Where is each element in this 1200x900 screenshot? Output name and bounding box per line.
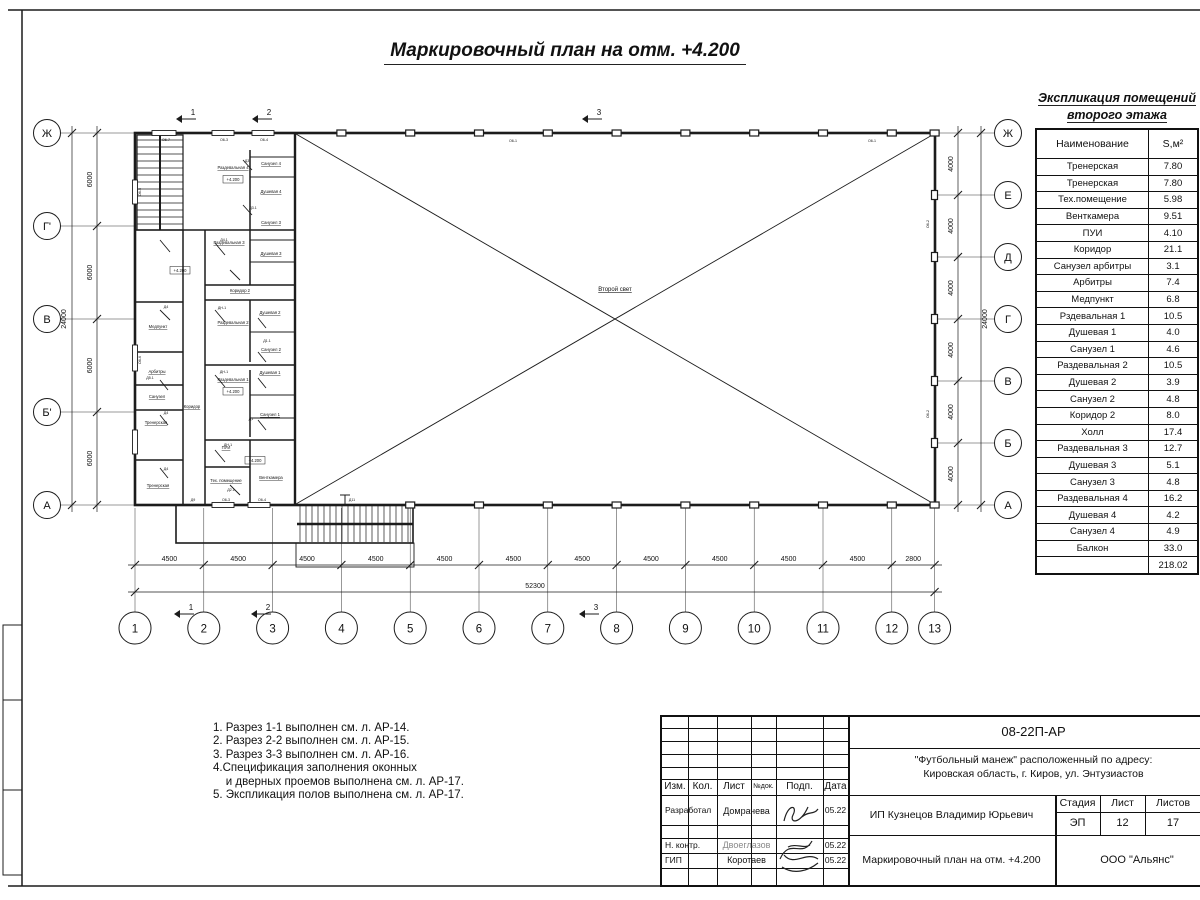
axis-bubble-right: Б <box>1004 438 1011 450</box>
table-row: Холл17.4 <box>1037 424 1197 441</box>
table-row: Тех.помещение5.98 <box>1037 191 1197 208</box>
plan-generated-annotations: ЖГ'ВБ'А600060006000600024000ЖЕДГВБА40004… <box>34 108 1022 644</box>
explication-panel: Экспликация помещений второго этажа Наим… <box>1035 90 1199 575</box>
wall-tag: ДН-1 <box>224 443 232 447</box>
note-line: 5. Экспликация полов выполнена см. л. АР… <box>213 789 464 802</box>
table-row: Тренерская7.80 <box>1037 158 1197 175</box>
axis-bubble-left: А <box>43 500 51 512</box>
plan-walls <box>135 133 935 505</box>
room-name: Тренерская <box>1037 176 1149 192</box>
dim-label: 4000 <box>948 280 955 296</box>
room-area: 8.0 <box>1149 408 1197 424</box>
col-podp: Подп. <box>776 779 823 795</box>
table-row: Раздевальная 312.7 <box>1037 440 1197 457</box>
wall-tag: Д3.1 <box>249 206 256 210</box>
room-name: Рздевальная 1 <box>1037 308 1149 324</box>
section-marker-label: 3 <box>594 603 599 612</box>
table-header: Наименование S,м² <box>1037 130 1197 158</box>
wall-tag: Д1.1 <box>263 339 270 343</box>
axis-bubble-bottom: 13 <box>928 624 941 636</box>
dim-total: 52300 <box>525 583 545 590</box>
wall-tag: О6-1 <box>868 139 876 143</box>
room-area: 4.8 <box>1149 391 1197 407</box>
title-block: Изм. Кол. Лист №док. Подп. Дата Разработ… <box>660 715 1200 887</box>
wall-tag: О6-2 <box>926 220 930 228</box>
section-marker-label: 3 <box>597 108 602 117</box>
room-label: Санузел 3 <box>261 220 281 225</box>
room-label: Раздевальная 4 <box>217 165 249 170</box>
room-label: Душевая 3 <box>261 251 283 256</box>
axis-bubble-bottom: 5 <box>407 624 413 636</box>
axis-bubble-right: Ж <box>1003 128 1013 140</box>
section-marker-label: 2 <box>267 108 272 117</box>
table-row: Душевая 23.9 <box>1037 374 1197 391</box>
total-name <box>1037 557 1149 573</box>
table-row: Санузел арбитры3.1 <box>1037 258 1197 275</box>
developed-date: 05.22 <box>823 797 848 825</box>
note-line: 1. Разрез 1-1 выполнен см. л. АР-14. <box>213 722 464 735</box>
col-data: Дата <box>823 779 848 795</box>
client-name: ИП Кузнецов Владимир Юрьевич <box>848 795 1055 835</box>
room-area: 10.5 <box>1149 308 1197 324</box>
room-area: 6.8 <box>1149 292 1197 308</box>
axis-bubble-left: Ж <box>42 128 52 140</box>
gip-date: 05.22 <box>823 853 848 868</box>
table-row: Коридор21.1 <box>1037 241 1197 258</box>
axis-bubble-right: В <box>1004 376 1011 388</box>
total-area: 218.02 <box>1149 557 1197 573</box>
wall-tag: Д1 <box>249 417 253 421</box>
room-label: Венткамера <box>259 475 283 480</box>
dim-label: 6000 <box>87 451 94 467</box>
dim-label: 4500 <box>781 556 797 563</box>
level-mark: +4.200 <box>227 389 241 394</box>
room-area: 5.98 <box>1149 192 1197 208</box>
room-label: Медпункт <box>149 324 168 329</box>
room-label: Санузел 2 <box>261 347 281 352</box>
staircase <box>137 135 183 230</box>
axis-bubble-right: Д <box>1004 252 1012 264</box>
wall-tag: О6-7 <box>162 138 170 142</box>
wall-tag: О6-5 <box>138 188 142 196</box>
room-name: ПУИ <box>1037 225 1149 241</box>
table-row: Коридор 28.0 <box>1037 407 1197 424</box>
room-area: 3.1 <box>1149 259 1197 275</box>
room-name: Балкон <box>1037 541 1149 557</box>
room-area: 4.6 <box>1149 342 1197 358</box>
drawing-sheet: { "sheet": { "title": "Маркировочный пла… <box>0 0 1200 900</box>
room-name: Арбитры <box>1037 275 1149 291</box>
wall-tag: ДН-1 <box>218 306 226 310</box>
table-row: Санузел 44.9 <box>1037 523 1197 540</box>
wall-tag: Д4 <box>164 305 168 309</box>
dim-total: 24000 <box>982 309 989 329</box>
dim-label: 4000 <box>948 156 955 172</box>
object-line2: Кировская область, г. Киров, ул. Энтузиа… <box>848 764 1200 784</box>
room-name: Коридор <box>1037 242 1149 258</box>
ncontr-name: Двоеглазов <box>717 838 776 853</box>
sheet-label: Лист <box>1100 795 1145 812</box>
room-area: 4.2 <box>1149 507 1197 523</box>
axis-bubble-bottom: 1 <box>132 624 138 636</box>
dim-label: 4500 <box>574 556 590 563</box>
note-line: 3. Разрез 3-3 выполнен см. л. АР-16. <box>213 749 464 762</box>
table-row: Душевая 35.1 <box>1037 457 1197 474</box>
axis-bubble-bottom: 4 <box>338 624 345 636</box>
room-area: 4.9 <box>1149 524 1197 540</box>
room-label: Тренерская <box>147 483 170 488</box>
wall-tag: Д5.1 <box>146 376 153 380</box>
dim-label: 4500 <box>850 556 866 563</box>
dim-label: 6000 <box>87 265 94 281</box>
table-total-row: 218.02 <box>1037 556 1197 573</box>
section-marker-label: 1 <box>191 108 196 117</box>
room-name: Душевая 3 <box>1037 458 1149 474</box>
room-name: Санузел 3 <box>1037 474 1149 490</box>
dim-label: 4000 <box>948 404 955 420</box>
company-name: ООО "Альянс" <box>1055 835 1200 885</box>
axis-bubble-bottom: 3 <box>269 624 275 636</box>
col-list: Лист <box>717 779 751 795</box>
dim-label: 4500 <box>506 556 522 563</box>
explication-body: Тренерская7.80Тренерская7.80Тех.помещени… <box>1037 158 1197 556</box>
axis-bubble-bottom: 7 <box>545 624 551 636</box>
drawing-title: Маркировочный план на отм. +4.200 <box>848 835 1055 885</box>
dim-label: 6000 <box>87 358 94 374</box>
room-area: 17.4 <box>1149 425 1197 441</box>
axis-bubble-right: Е <box>1004 190 1011 202</box>
room-label: Душевая 2 <box>260 310 282 315</box>
room-name: Тренерская <box>1037 159 1149 175</box>
col-header-area: S,м² <box>1149 130 1197 158</box>
table-row: Раздевальная 210.5 <box>1037 357 1197 374</box>
stage-label: Стадия <box>1055 795 1100 812</box>
stage-value: ЭП <box>1055 812 1100 835</box>
room-name: Санузел 4 <box>1037 524 1149 540</box>
table-row: Санузел 14.6 <box>1037 341 1197 358</box>
wall-tag: О6-3 <box>222 498 230 502</box>
doc-code: 08-22П-АР <box>848 717 1200 748</box>
table-row: Раздевальная 416.2 <box>1037 490 1197 507</box>
axis-bubble-bottom: 10 <box>748 624 761 636</box>
void-label: Второй свет <box>598 286 632 293</box>
room-label: Санузел 4 <box>261 161 281 166</box>
room-area: 33.0 <box>1149 541 1197 557</box>
wall-tag: О6-4 <box>258 498 266 502</box>
wall-tag: Д9 <box>191 498 195 502</box>
axis-bubble-right: Г <box>1005 314 1011 326</box>
note-line: и дверных проемов выполнена см. л. АР-17… <box>213 776 464 789</box>
explication-title-line1: Экспликация помещений <box>1038 91 1196 106</box>
dim-label: 2800 <box>905 556 921 563</box>
room-area: 10.5 <box>1149 358 1197 374</box>
dim-label: 4000 <box>948 466 955 482</box>
ncontr-date: 05.22 <box>823 838 848 853</box>
wall-tag: Д2.1 <box>227 488 234 492</box>
table-row: Тренерская7.80 <box>1037 175 1197 192</box>
room-name: Санузел 1 <box>1037 342 1149 358</box>
wall-tag: Д3 <box>245 159 249 163</box>
room-area: 7.80 <box>1149 159 1197 175</box>
axis-bubble-left: Б' <box>42 407 51 419</box>
table-row: Медпункт6.8 <box>1037 291 1197 308</box>
table-row: Арбитры7.4 <box>1037 274 1197 291</box>
dim-label: 6000 <box>87 172 94 188</box>
table-row: Санузел 34.8 <box>1037 473 1197 490</box>
axis-bubble-bottom: 6 <box>476 624 482 636</box>
room-name: Раздевальная 4 <box>1037 491 1149 507</box>
axis-bubble-right: А <box>1004 500 1012 512</box>
room-label: Санузел <box>149 394 166 399</box>
room-label: Коридор <box>184 404 201 409</box>
table-row: Санузел 24.8 <box>1037 390 1197 407</box>
wall-tag: ДН-1 <box>220 370 228 374</box>
room-area: 21.1 <box>1149 242 1197 258</box>
room-area: 5.1 <box>1149 458 1197 474</box>
wall-tag: О6-2 <box>926 410 930 418</box>
room-area: 7.80 <box>1149 176 1197 192</box>
wall-tag: Д4 <box>164 411 168 415</box>
wall-tag: О6-1 <box>509 139 517 143</box>
room-label: Арбитры <box>148 369 165 374</box>
dim-label: 4000 <box>948 218 955 234</box>
room-name: Санузел арбитры <box>1037 259 1149 275</box>
page-title: Маркировочный план на отм. +4.200 <box>330 40 800 65</box>
ncontr-role: Н. контр. <box>662 838 717 853</box>
wall-tag: О6-6 <box>138 356 142 364</box>
dim-label: 4500 <box>162 556 178 563</box>
wall-tag: Д4.1 <box>220 238 227 242</box>
room-name: Раздевальная 3 <box>1037 441 1149 457</box>
developed-role: Разработал <box>662 797 717 825</box>
col-izm: Изм. <box>662 779 688 795</box>
room-name: Санузел 2 <box>1037 391 1149 407</box>
table-row: ПУИ4.10 <box>1037 224 1197 241</box>
notes: 1. Разрез 1-1 выполнен см. л. АР-14.2. Р… <box>213 722 464 802</box>
wall-tag: О6-4 <box>260 138 268 142</box>
dim-total: 24000 <box>61 309 68 329</box>
room-label: Душевая 4 <box>261 189 283 194</box>
room-label: Раздевальная 1 <box>217 377 249 382</box>
axis-bubble-bottom: 2 <box>201 624 207 636</box>
table-row: Рздевальная 110.5 <box>1037 307 1197 324</box>
wall-tag: О6-3 <box>220 138 228 142</box>
page-title-text: Маркировочный план на отм. +4.200 <box>384 40 746 65</box>
room-area: 4.0 <box>1149 325 1197 341</box>
sheets-total: 17 <box>1145 812 1200 835</box>
sheet-number: 12 <box>1100 812 1145 835</box>
room-label: Санузел 1 <box>260 412 280 417</box>
col-ndok: №док. <box>751 779 776 795</box>
level-mark: +4.200 <box>227 177 241 182</box>
developed-name: Домрачева <box>717 797 776 825</box>
room-label: Коридор 2 <box>230 288 251 293</box>
wall-tag: Д11 <box>349 498 355 502</box>
note-line: 2. Разрез 2-2 выполнен см. л. АР-15. <box>213 735 464 748</box>
sheets-label: Листов <box>1145 795 1200 812</box>
section-marker-label: 1 <box>189 603 194 612</box>
axis-bubble-bottom: 11 <box>817 624 829 636</box>
table-row: Душевая 14.0 <box>1037 324 1197 341</box>
room-area: 3.9 <box>1149 375 1197 391</box>
table-row: Венткамера9.51 <box>1037 208 1197 225</box>
dim-label: 4000 <box>948 342 955 358</box>
axis-bubble-left: Г' <box>43 221 51 233</box>
room-area: 7.4 <box>1149 275 1197 291</box>
axis-bubble-bottom: 9 <box>682 624 688 636</box>
level-mark: +4.200 <box>249 458 263 463</box>
table-row: Душевая 44.2 <box>1037 506 1197 523</box>
wall-tag: Д4 <box>164 467 168 471</box>
room-name: Тех.помещение <box>1037 192 1149 208</box>
room-area: 9.51 <box>1149 209 1197 225</box>
table-row: Балкон33.0 <box>1037 540 1197 557</box>
room-name: Душевая 1 <box>1037 325 1149 341</box>
gip-role: ГИП <box>662 853 717 868</box>
col-header-name: Наименование <box>1037 130 1149 158</box>
room-name: Холл <box>1037 425 1149 441</box>
axis-bubble-bottom: 12 <box>885 624 898 636</box>
room-label: Раздевальная 2 <box>217 320 249 325</box>
dim-label: 4500 <box>368 556 384 563</box>
dim-label: 4500 <box>437 556 453 563</box>
explication-title: Экспликация помещений второго этажа <box>1035 90 1199 124</box>
room-name: Венткамера <box>1037 209 1149 225</box>
room-name: Медпункт <box>1037 292 1149 308</box>
explication-title-line2: второго этажа <box>1067 108 1167 123</box>
room-name: Душевая 2 <box>1037 375 1149 391</box>
room-label: Душевая 1 <box>260 370 282 375</box>
gip-name: Коротаев <box>717 853 776 868</box>
level-mark: +4.200 <box>174 268 188 273</box>
signature-gip <box>776 833 824 877</box>
room-label: Тех. помещение <box>210 478 242 483</box>
section-marker-label: 2 <box>266 603 271 612</box>
room-area: 4.10 <box>1149 225 1197 241</box>
room-area: 12.7 <box>1149 441 1197 457</box>
dim-label: 4500 <box>643 556 659 563</box>
room-area: 16.2 <box>1149 491 1197 507</box>
hall-void-cross <box>296 134 934 504</box>
room-label: Раздевальная 3 <box>213 240 245 245</box>
dim-label: 4500 <box>230 556 246 563</box>
signature-developed <box>778 797 823 827</box>
room-label: Тренерская <box>145 420 168 425</box>
explication-table: Наименование S,м² Тренерская7.80Тренерск… <box>1035 128 1199 575</box>
room-area: 4.8 <box>1149 474 1197 490</box>
dim-label: 4500 <box>299 556 315 563</box>
room-name: Душевая 4 <box>1037 507 1149 523</box>
room-name: Коридор 2 <box>1037 408 1149 424</box>
room-name: Раздевальная 2 <box>1037 358 1149 374</box>
note-line: 4.Спецификация заполнения оконных <box>213 762 464 775</box>
axis-bubble-left: В <box>43 314 50 326</box>
window-symbols <box>133 131 275 508</box>
axis-bubble-bottom: 8 <box>613 624 619 636</box>
dim-label: 4500 <box>712 556 728 563</box>
col-kol: Кол. <box>688 779 717 795</box>
